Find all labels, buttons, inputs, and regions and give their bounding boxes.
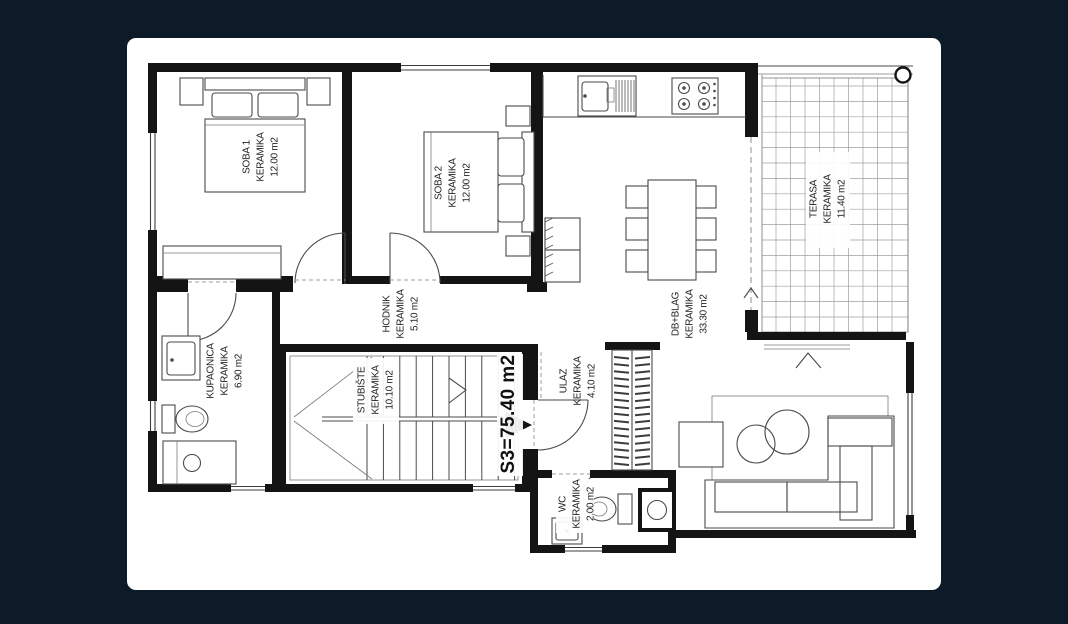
dining-table-icon [626,180,716,280]
label-terasa-name: TERASA [809,179,820,218]
label-stubiste-finish: KERAMIKA [371,365,382,415]
stove-icon [672,78,718,114]
label-wc-finish: KERAMIKA [572,479,583,529]
label-soba1-area: 12.00 m2 [270,137,281,177]
label-ulaz-area: 4.10 m2 [587,363,598,398]
side-table-icon [679,422,723,467]
bathtub-icon [163,441,236,484]
toilet-icon [162,405,175,433]
label-dbblag-finish: KERAMIKA [685,289,696,339]
unit-area-label: S3=75.40 m2 [498,354,519,473]
label-hodnik-finish: KERAMIKA [396,289,407,339]
label-stubiste-name: STUBIŠTE [355,366,368,413]
label-ulaz-finish: KERAMIKA [573,356,584,406]
label-soba2-area: 12.00 m2 [462,163,473,203]
wc-toilet-icon [618,494,632,524]
label-ulaz-name: ULAZ [559,369,570,394]
label-soba2-name: SOBA 2 [434,165,445,200]
label-dbblag-name: DB+BLAG [671,291,682,336]
floor-plan-page: SOBA 1 KERAMIKA 12.00 m2 SOBA 2 KERAMIKA… [0,0,1068,624]
shaft [640,490,674,530]
label-wc-area: 2.00 m2 [586,486,597,521]
label-hodnik-area: 5.10 m2 [410,296,421,331]
label-kupaonica-area: 6.90 m2 [234,353,245,388]
label-terasa-area: 11.40 m2 [837,179,848,218]
label-kupaonica-finish: KERAMIKA [220,346,231,396]
label-hodnik-name: HODNIK [382,295,393,333]
fridge-icon [545,218,580,250]
cabinet-icon [545,250,580,282]
terrace-column [896,68,911,83]
label-dbblag-area: 33.30 m2 [699,294,710,334]
label-soba1-name: SOBA 1 [242,139,253,174]
label-wc-name: WC [558,496,569,512]
label-kupaonica-name: KUPAONICA [206,343,217,399]
label-stubiste-area: 10.10 m2 [385,370,396,410]
label-soba1-finish: KERAMIKA [256,132,267,182]
floor-plan-drawing: SOBA 1 KERAMIKA 12.00 m2 SOBA 2 KERAMIKA… [0,0,1068,624]
wardrobe-icon [612,350,652,470]
label-terasa-finish: KERAMIKA [823,174,834,224]
label-soba2-finish: KERAMIKA [448,158,459,208]
